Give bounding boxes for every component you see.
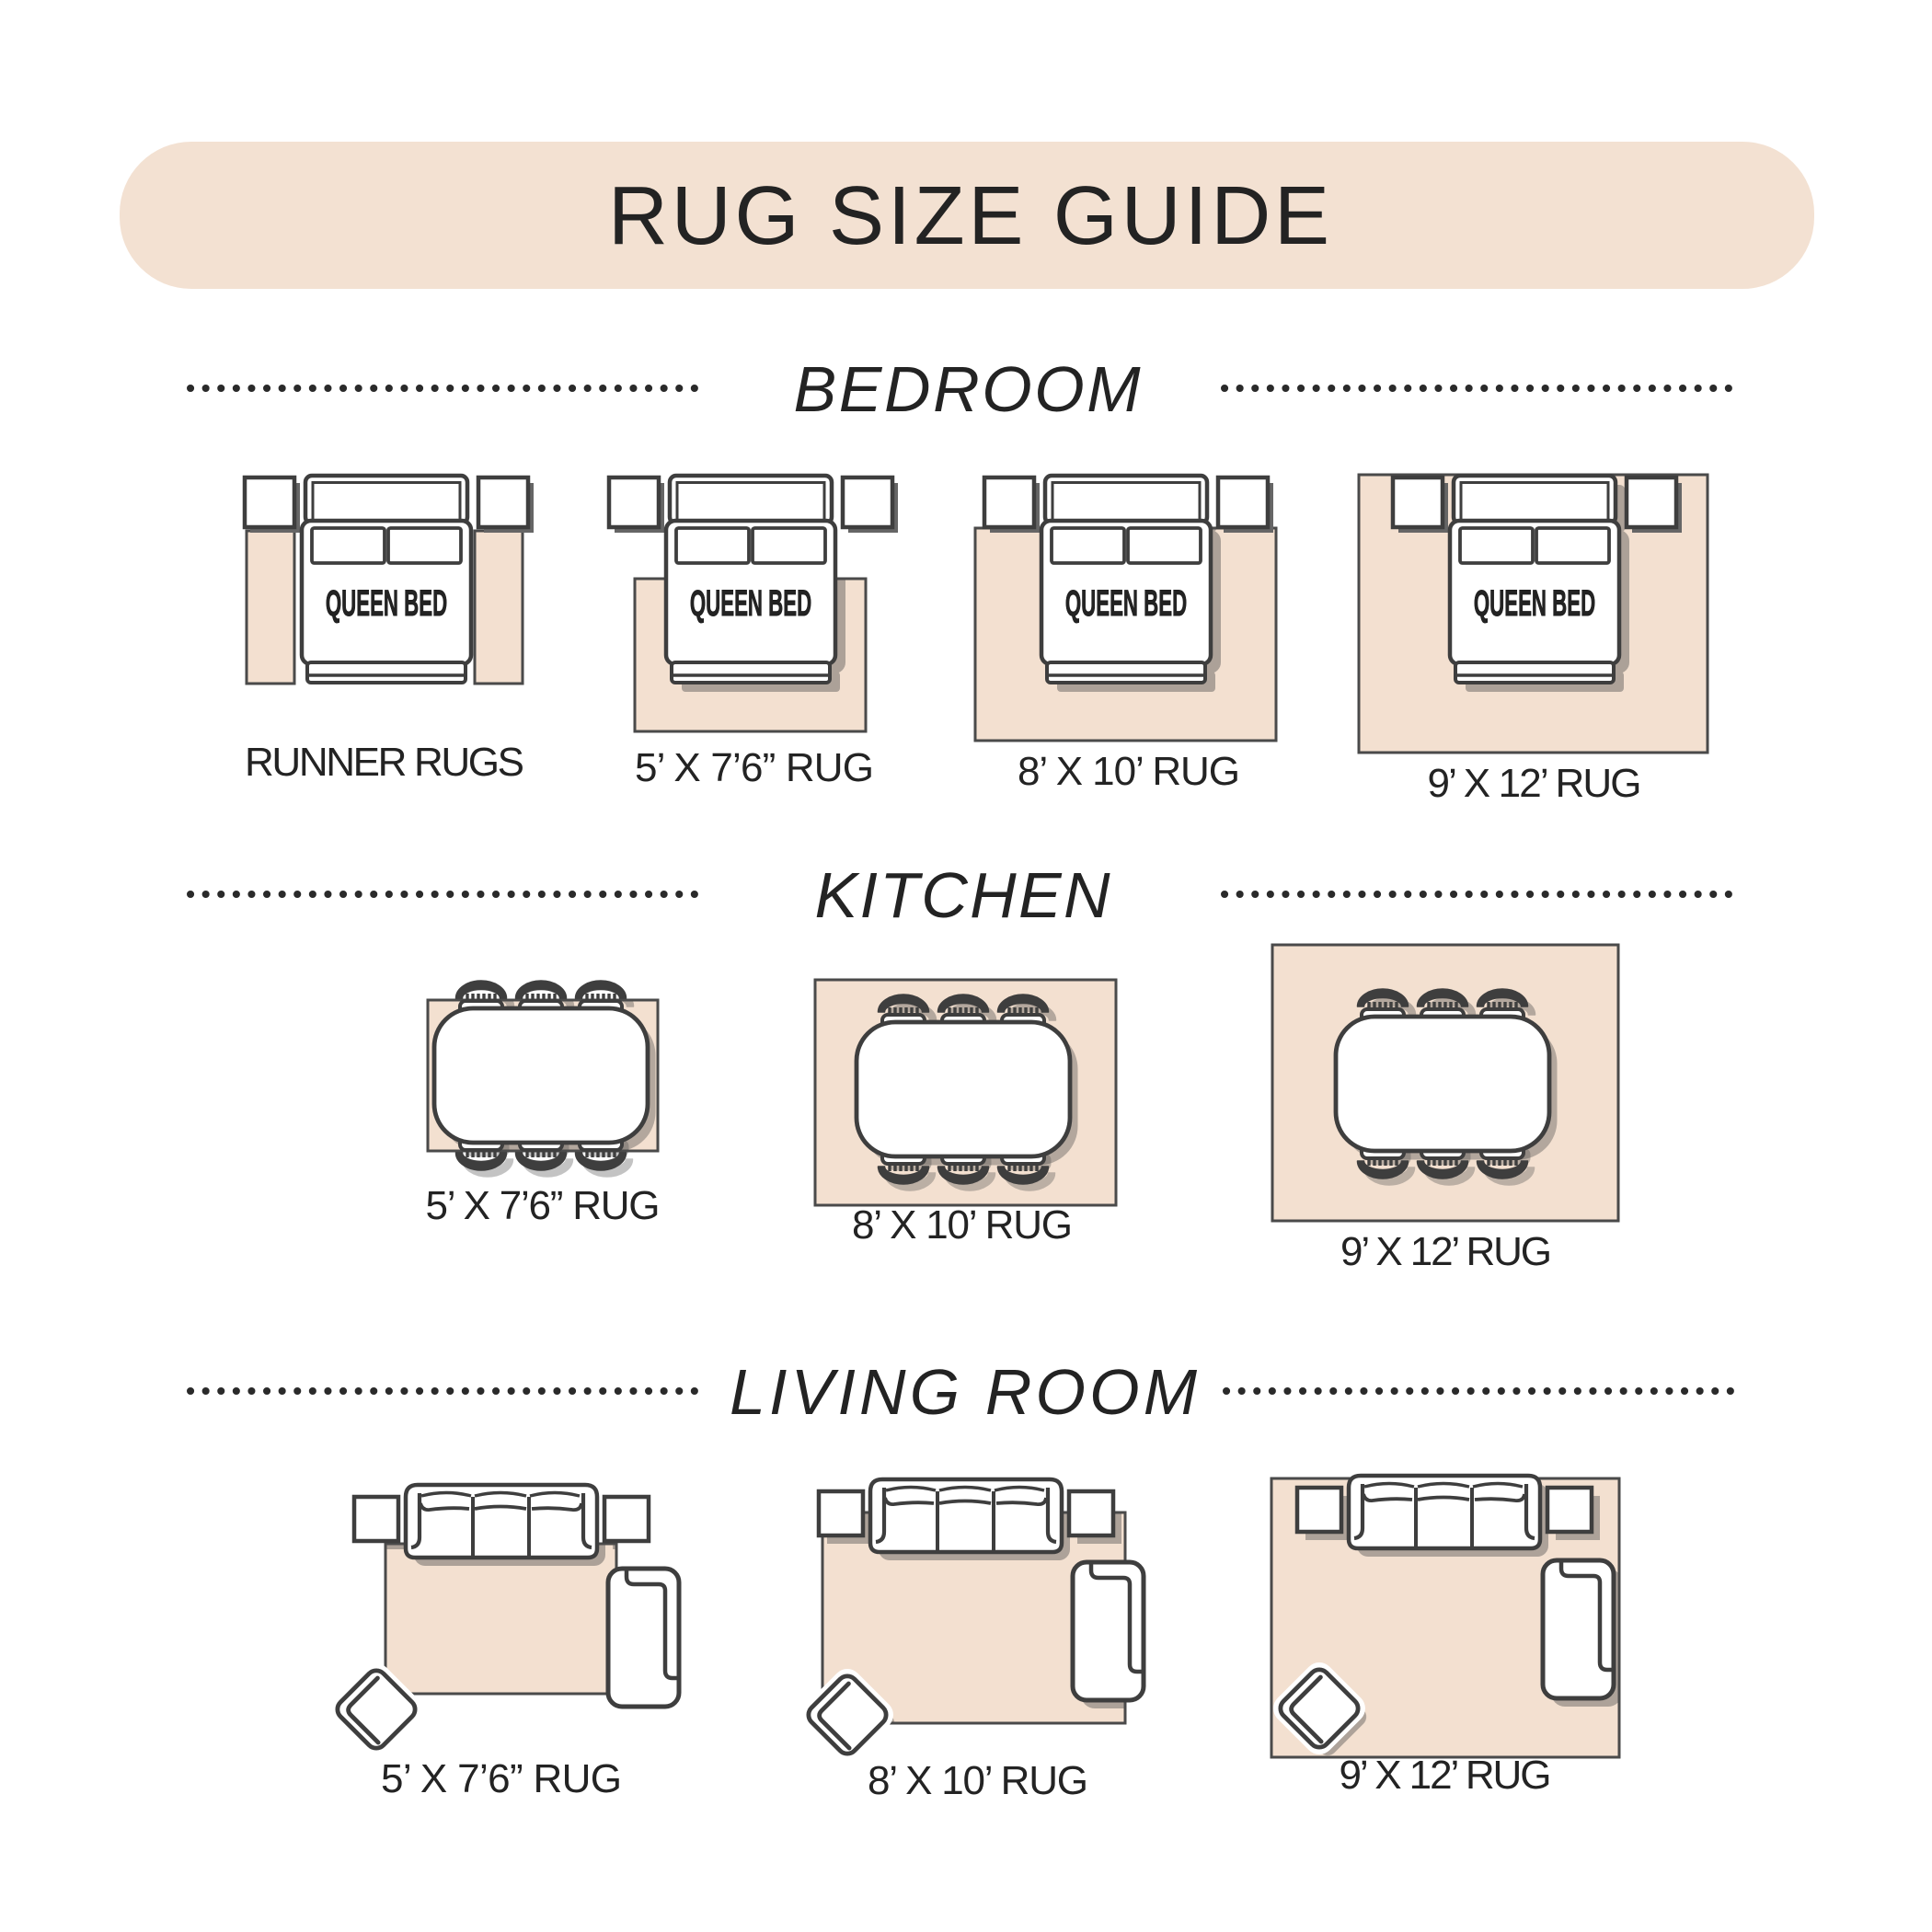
svg-text:9’ X 12’ RUG: 9’ X 12’ RUG <box>1340 1229 1552 1274</box>
svg-text:9’ X 12’ RUG: 9’ X 12’ RUG <box>1428 761 1642 806</box>
svg-text:LIVING ROOM: LIVING ROOM <box>730 1356 1198 1428</box>
svg-text:5’ X 7’6” RUG: 5’ X 7’6” RUG <box>635 745 874 790</box>
svg-text:BEDROOM: BEDROOM <box>794 353 1142 425</box>
svg-text:5’ X 7’6” RUG: 5’ X 7’6” RUG <box>381 1756 622 1801</box>
svg-text:KITCHEN: KITCHEN <box>815 859 1110 931</box>
svg-text:9’ X 12’ RUG: 9’ X 12’ RUG <box>1340 1753 1552 1798</box>
svg-text:RUG SIZE GUIDE: RUG SIZE GUIDE <box>608 170 1329 262</box>
svg-text:5’ X 7’6” RUG: 5’ X 7’6” RUG <box>426 1183 661 1228</box>
svg-text:8’ X 10’ RUG: 8’ X 10’ RUG <box>868 1758 1088 1803</box>
svg-text:8’ X 10’ RUG: 8’ X 10’ RUG <box>1018 749 1240 794</box>
svg-text:RUNNER RUGS: RUNNER RUGS <box>245 740 524 785</box>
svg-text:8’ X 10’ RUG: 8’ X 10’ RUG <box>852 1202 1073 1248</box>
